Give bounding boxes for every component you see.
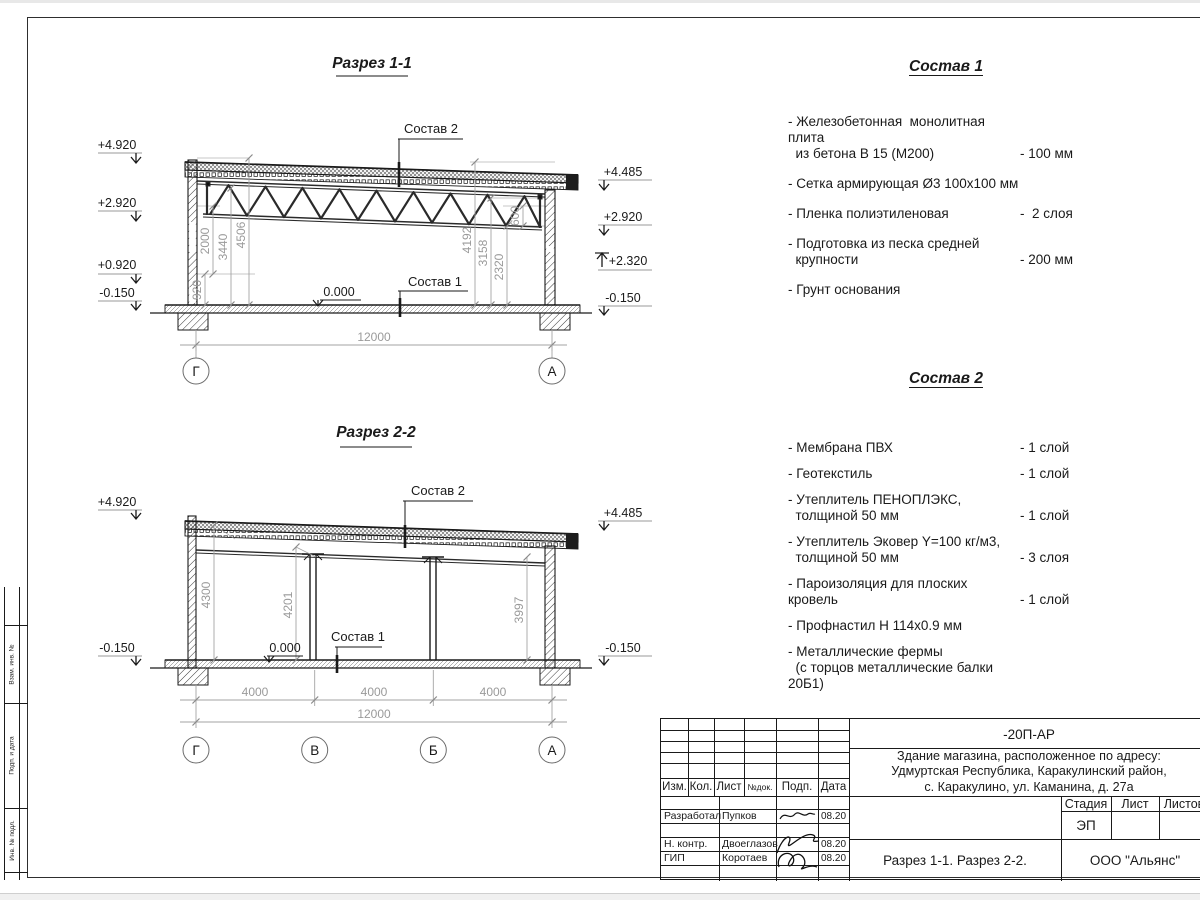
material-name: - Сетка армирующая Ø3 100х100 мм <box>788 176 1020 192</box>
roof-end-cap <box>566 533 578 549</box>
sostav2-title: Состав 2 <box>860 370 1032 388</box>
material-name: - Утеплитель ПЕНОПЛЭКС, толщиной 50 мм <box>788 492 1020 524</box>
elevation-marks-right: +4.485 +2.920 +2.320 -0.150 <box>595 165 652 315</box>
roof-slab <box>185 521 578 549</box>
sostav1-ref-label: Состав 1 <box>408 274 462 289</box>
sheets-label: Листов <box>1159 796 1200 811</box>
name-developer: Пупков <box>722 809 774 823</box>
right-wall <box>545 546 555 668</box>
material-value: - 1 слой <box>1020 592 1100 608</box>
axis-label: В <box>310 743 319 758</box>
sostav1-ref-label: Состав 1 <box>331 629 385 644</box>
material-value: - 1 слой <box>1020 440 1100 456</box>
list-item: - Железобетонная монолитная плита из бет… <box>788 114 1100 162</box>
material-name: - Пароизоляция для плоских кровель <box>788 576 1020 608</box>
bottom-dimensions: 4000 4000 4000 12000 <box>180 670 567 728</box>
dim-label: 4192 <box>460 226 474 253</box>
sostav1-list: - Железобетонная монолитная плита из бет… <box>788 114 1100 312</box>
strip-cell-podp: Подп. и дата <box>5 703 19 808</box>
section-2-2-title: Разрез 2-2 <box>336 424 416 441</box>
dim-label: 4300 <box>199 581 213 608</box>
col-kol: Кол. <box>688 778 714 796</box>
dim-label: 3440 <box>216 233 230 260</box>
zero-level-mark: 0.000 <box>313 285 361 306</box>
page-bottom-edge <box>0 893 1200 900</box>
sostav2-list: - Мембрана ПВХ- 1 слой - Геотекстиль- 1 … <box>788 440 1100 702</box>
list-item: - Подготовка из песка средней крупности-… <box>788 236 1100 268</box>
elevation-label: +0.920 <box>98 258 137 272</box>
span-dim-label: 4000 <box>242 685 269 699</box>
material-name: - Грунт основания <box>788 282 1020 298</box>
col-podp: Подп. <box>776 778 818 796</box>
elevation-label: -0.150 <box>99 641 134 655</box>
strip-cell-inv: Инв. № подл. <box>5 808 19 872</box>
material-value: - 2 слоя <box>1020 206 1100 222</box>
material-name: - Подготовка из песка средней крупности <box>788 236 1020 268</box>
roof-end-cap <box>566 174 578 190</box>
list-item: - Сетка армирующая Ø3 100х100 мм <box>788 176 1100 192</box>
strip-cell-vzam: Взам. инв. № <box>5 625 19 703</box>
col-list: Лист <box>714 778 744 796</box>
elevation-label: +2.320 <box>609 254 648 268</box>
axis-markers: Г В Б А <box>183 737 565 763</box>
dim-label: 2000 <box>198 227 212 254</box>
title-block: Изм. Кол. Лист №док. Подп. Дата Разработ… <box>660 718 1200 880</box>
foundation-pad <box>178 668 208 685</box>
bottom-dimension: 12000 <box>180 330 567 351</box>
page-top-edge <box>0 0 1200 3</box>
left-stamp-strip: Взам. инв. № Подп. и дата Инв. № подл. <box>4 587 27 880</box>
sheet-subtitle: Разрез 1-1. Разрез 2-2. <box>849 839 1061 881</box>
stage-label: Стадия <box>1061 796 1111 811</box>
material-name: - Профнастил Н 114х0.9 мм <box>788 618 1020 634</box>
elevation-label: +4.485 <box>604 506 643 520</box>
foundation-pad <box>540 313 570 330</box>
dim-label: 4201 <box>281 591 295 618</box>
elevation-label: -0.150 <box>605 641 640 655</box>
name-gip: Коротаев <box>722 851 774 865</box>
section-1-1-title: Разрез 1-1 <box>332 55 412 72</box>
material-value: - 3 слоя <box>1020 550 1100 566</box>
signature-icon <box>777 808 817 823</box>
zero-label: 0.000 <box>323 285 354 299</box>
role-developer: Разработал <box>664 809 718 823</box>
column-B <box>302 554 324 660</box>
role-gip: ГИП <box>664 851 718 865</box>
sostav1-title: Состав 1 <box>860 58 1032 76</box>
left-wall <box>188 516 196 668</box>
dim-label: 4506 <box>234 221 248 248</box>
stage-value: ЭП <box>1061 811 1111 839</box>
foundation-pad <box>178 313 208 330</box>
floor-slab <box>150 660 592 685</box>
foundation-pad <box>540 668 570 685</box>
elevation-label: +2.920 <box>604 210 643 224</box>
axis-label: Г <box>192 364 200 379</box>
list-item: - Утеплитель Эковер Y=100 кг/м3, толщино… <box>788 534 1100 566</box>
sheet-label: Лист <box>1111 796 1159 811</box>
material-name: - Мембрана ПВХ <box>788 440 1020 456</box>
elevation-label: +4.485 <box>604 165 643 179</box>
sostav2-ref-label: Состав 2 <box>404 121 458 136</box>
sostav2-ref-label: Состав 2 <box>411 483 465 498</box>
date-developer: 08.20 <box>818 809 849 823</box>
dim-label: 600 <box>508 206 522 226</box>
material-name: - Пленка полиэтиленовая <box>788 206 1020 222</box>
elevation-marks-left: +4.920 +2.920 +0.920 -0.150 <box>98 138 142 310</box>
list-item: - Утеплитель ПЕНОПЛЭКС, толщиной 50 мм- … <box>788 492 1100 524</box>
list-item: - Металлические фермы (с торцов металлич… <box>788 644 1100 692</box>
list-item: - Профнастил Н 114х0.9 мм <box>788 618 1100 634</box>
elevation-label: +4.920 <box>98 138 137 152</box>
section-1-1-drawing: Разрез 1-1 <box>85 45 660 390</box>
column-Б <box>422 557 444 660</box>
doc-code: -20П-АР <box>849 721 1200 747</box>
material-name: - Железобетонная монолитная плита из бет… <box>788 114 1020 162</box>
axis-markers: Г А <box>183 345 565 384</box>
material-value: - 100 мм <box>1020 146 1100 162</box>
signature-icon <box>769 827 823 875</box>
material-name: - Геотекстиль <box>788 466 1020 482</box>
company-name: ООО "Альянс" <box>1061 839 1200 881</box>
list-item: - Геотекстиль- 1 слой <box>788 466 1100 482</box>
elevation-mark-up: +2.320 <box>595 253 652 270</box>
material-name: - Утеплитель Эковер Y=100 кг/м3, толщино… <box>788 534 1020 566</box>
list-item: - Пароизоляция для плоских кровель- 1 сл… <box>788 576 1100 608</box>
drawing-sheet: Разрез 1-1 <box>0 0 1200 900</box>
span-dim-label: 4000 <box>480 685 507 699</box>
col-ndok: №док. <box>744 778 776 796</box>
elevation-label: -0.150 <box>605 291 640 305</box>
dim-label: 3997 <box>512 596 526 623</box>
total-dim-label: 12000 <box>357 707 391 721</box>
axis-label: Б <box>429 743 438 758</box>
floor-slab <box>150 305 592 330</box>
material-name: - Металлические фермы (с торцов металлич… <box>788 644 1020 692</box>
material-value: - 1 слой <box>1020 508 1100 524</box>
dim-label: 3158 <box>476 239 490 266</box>
axis-label: Г <box>192 743 200 758</box>
role-ncontrol: Н. контр. <box>664 837 718 851</box>
name-ncontrol: Двоеглазов <box>722 837 774 851</box>
total-dim-label: 12000 <box>357 330 391 344</box>
list-item: - Грунт основания <box>788 282 1100 298</box>
roof-beams <box>196 550 545 566</box>
material-value: - 1 слой <box>1020 466 1100 482</box>
project-description: Здание магазина, расположенное по адресу… <box>851 749 1200 795</box>
elevation-label: +4.920 <box>98 495 137 509</box>
axis-label: А <box>547 364 556 379</box>
section-2-2-drawing: Разрез 2-2 <box>85 415 660 775</box>
list-item: - Мембрана ПВХ- 1 слой <box>788 440 1100 456</box>
axis-label: А <box>547 743 556 758</box>
dim-label: 2320 <box>492 253 506 280</box>
col-data: Дата <box>818 778 849 796</box>
elevation-label: -0.150 <box>99 286 134 300</box>
elevation-label: +2.920 <box>98 196 137 210</box>
dim-label: 920 <box>190 280 204 300</box>
zero-label: 0.000 <box>269 641 300 655</box>
list-item: - Пленка полиэтиленовая- 2 слоя <box>788 206 1100 222</box>
span-dim-label: 4000 <box>361 685 388 699</box>
material-value: - 200 мм <box>1020 252 1100 268</box>
col-izm: Изм. <box>661 778 688 796</box>
